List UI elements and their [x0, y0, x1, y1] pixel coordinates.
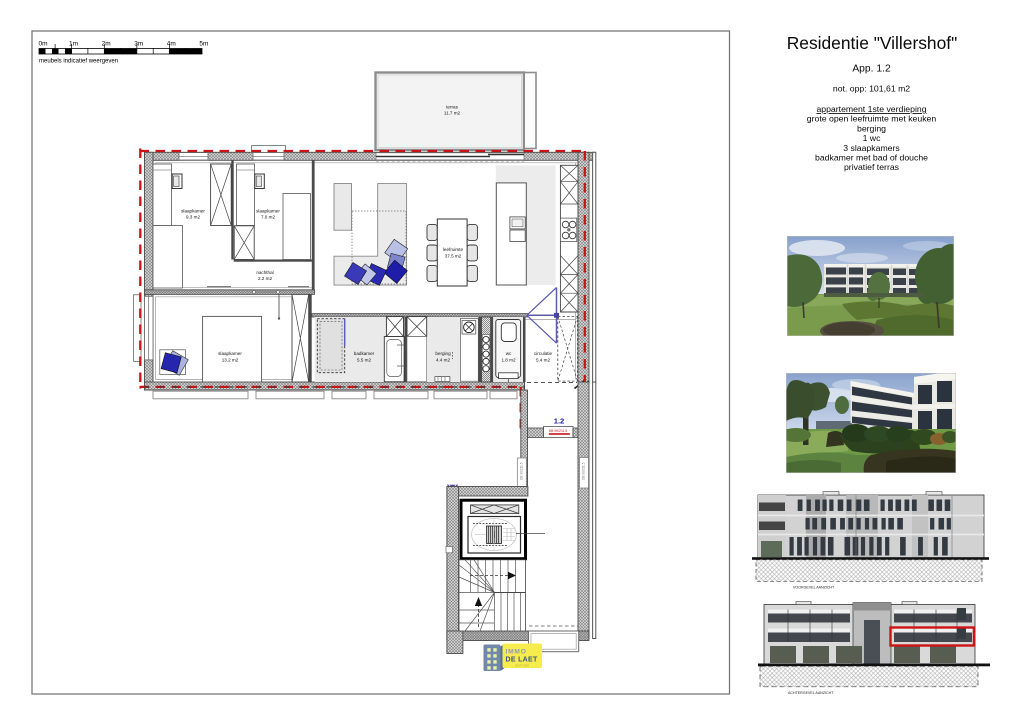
svg-text:5.4 m2: 5.4 m2 [536, 358, 550, 363]
svg-text:DB 90/211.5: DB 90/211.5 [520, 462, 524, 480]
svg-text:terras: terras [446, 105, 458, 110]
svg-text:slaapkamer: slaapkamer [218, 351, 242, 356]
svg-text:App. 1.2: App. 1.2 [852, 64, 891, 75]
svg-text:grote open leefruimte met keuk: grote open leefruimte met keuken [807, 114, 937, 124]
svg-text:appartement 1ste verdieping: appartement 1ste verdieping [816, 104, 926, 114]
svg-text:not. opp: 101,61 m2: not. opp: 101,61 m2 [833, 84, 910, 94]
svg-text:5.5 m2: 5.5 m2 [357, 358, 371, 363]
svg-text:badkamer: badkamer [354, 351, 375, 356]
svg-text:1.2: 1.2 [554, 417, 565, 426]
svg-text:Residentie "Villershof": Residentie "Villershof" [787, 33, 958, 53]
svg-text:meubels indicatief weergeven: meubels indicatief weergeven [39, 59, 118, 65]
svg-text:3 slaapkamers: 3 slaapkamers [843, 143, 900, 153]
svg-text:badkamer met bad of douche: badkamer met bad of douche [815, 153, 928, 163]
svg-text:circulatie: circulatie [534, 351, 553, 356]
svg-text:0m: 0m [39, 41, 48, 48]
svg-text:VASTGOED: VASTGOED [515, 664, 529, 668]
svg-text:7.0 m2: 7.0 m2 [261, 215, 275, 220]
svg-text:DB 90/211.5: DB 90/211.5 [582, 462, 586, 480]
svg-text:11.7 m2: 11.7 m2 [444, 111, 461, 116]
svg-text:DE LAET: DE LAET [506, 657, 538, 664]
svg-text:3m: 3m [134, 41, 143, 48]
svg-text:4.4 m2: 4.4 m2 [436, 358, 450, 363]
svg-text:2.2 m2: 2.2 m2 [258, 276, 272, 281]
svg-text:VOORGEVEL AANZICHT: VOORGEVEL AANZICHT [793, 586, 835, 590]
svg-text:5m: 5m [199, 41, 208, 48]
svg-text:berging: berging [435, 351, 451, 356]
svg-text:2m: 2m [102, 41, 111, 48]
svg-text:nachthal: nachthal [256, 270, 273, 275]
svg-text:privatief terras: privatief terras [844, 162, 900, 172]
svg-text:leefruimte: leefruimte [443, 247, 464, 252]
svg-text:ACHTERGEVEL AANZICHT: ACHTERGEVEL AANZICHT [788, 691, 834, 695]
svg-text:1.8 m2: 1.8 m2 [501, 358, 515, 363]
svg-text:slaapkamer: slaapkamer [256, 209, 280, 214]
svg-text:berging: berging [857, 123, 886, 133]
svg-text:wc: wc [506, 351, 512, 356]
svg-text:DB 90/211.5: DB 90/211.5 [549, 429, 568, 433]
svg-text:9.3 m2: 9.3 m2 [186, 215, 200, 220]
svg-text:1m: 1m [69, 41, 78, 48]
svg-text:IMMO: IMMO [506, 649, 527, 656]
svg-text:13.2 m2: 13.2 m2 [222, 358, 239, 363]
svg-text:slaapkamer: slaapkamer [181, 209, 205, 214]
svg-text:1 wc: 1 wc [863, 133, 882, 143]
svg-text:4m: 4m [167, 41, 176, 48]
svg-text:37.5 m2: 37.5 m2 [445, 254, 462, 259]
